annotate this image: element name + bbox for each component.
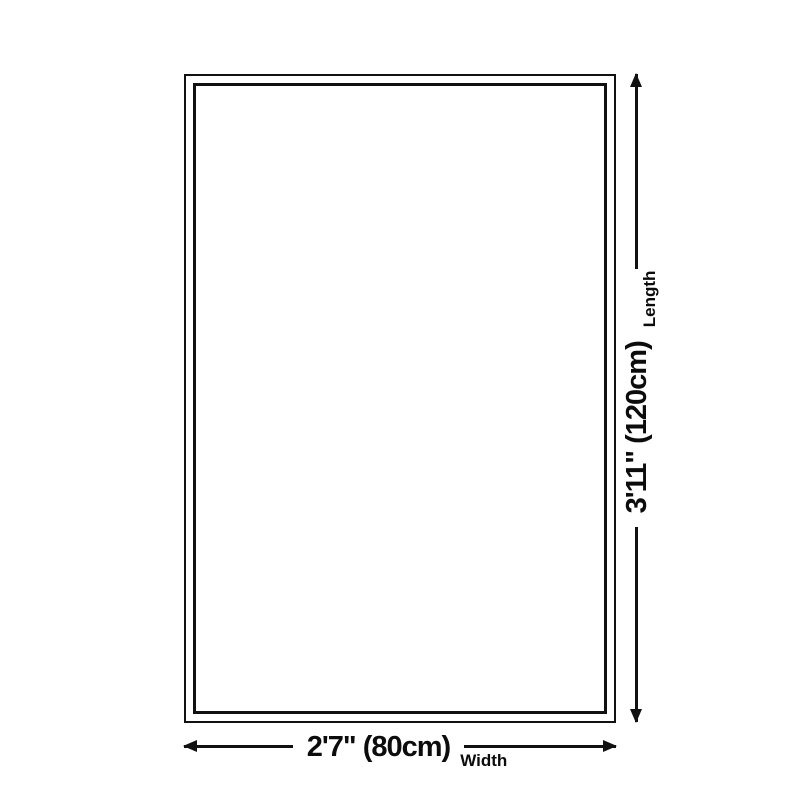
length-dimension: 3'11" (120cm) Length [619, 74, 661, 722]
arrow-left-icon [183, 740, 197, 752]
width-axis-label: Width [460, 751, 507, 771]
length-axis-label: Length [640, 271, 660, 328]
length-dimension-end: Length [619, 74, 660, 327]
width-dimension-line-left [184, 745, 293, 748]
arrow-right-icon [603, 740, 617, 752]
width-value: 2'7" (80cm) [307, 729, 450, 765]
width-dimension: 2'7" (80cm) Width [184, 729, 616, 771]
length-dimension-line-bottom [635, 527, 638, 722]
width-dimension-end: Width [464, 729, 616, 771]
length-dimension-line-top [635, 74, 638, 269]
length-value: 3'11" (120cm) [619, 341, 655, 513]
width-dimension-line-right [464, 745, 616, 748]
arrow-down-icon [630, 709, 642, 723]
arrow-up-icon [630, 73, 642, 87]
item-inner-border [193, 83, 607, 714]
item-outline [184, 74, 616, 723]
dimension-diagram: 2'7" (80cm) Width 3'11" (120cm) Length [0, 0, 800, 800]
